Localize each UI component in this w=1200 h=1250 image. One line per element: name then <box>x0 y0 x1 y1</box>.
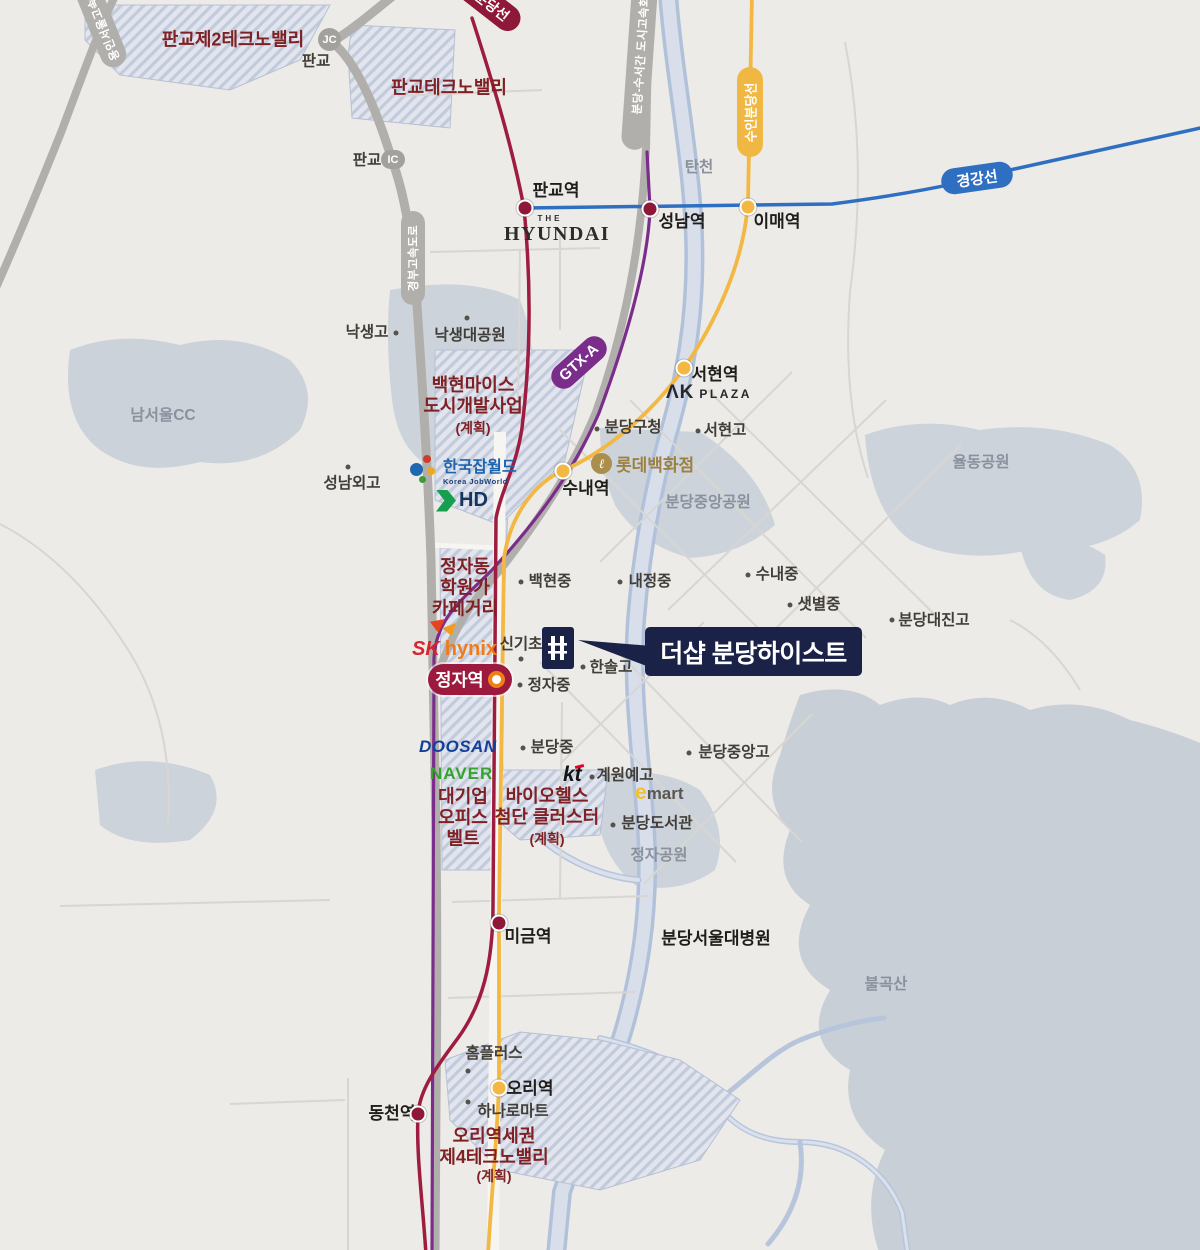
poi-dot <box>696 429 701 434</box>
map-label: 바이오헬스 첨단 클러스터 <box>495 786 599 828</box>
map-label: 동천역 <box>369 1104 416 1124</box>
station-dot <box>410 1106 427 1123</box>
map-label: 오리역 <box>507 1079 554 1099</box>
map-label: 분당중앙고 <box>698 744 769 762</box>
poi-dot <box>346 465 351 470</box>
map-label: 내정중 <box>629 573 672 591</box>
poi-dot <box>595 427 600 432</box>
map-label: 판교 <box>302 53 331 71</box>
lotte-department-store-logo: ℓ 롯데백화점 <box>591 451 694 476</box>
poi-dot <box>394 331 399 336</box>
map-label: 신기초 <box>500 636 543 654</box>
map-label: 분당중 <box>531 739 574 757</box>
map-label: 분당중앙공원 <box>665 494 751 512</box>
station-dot <box>491 915 508 932</box>
map-label: 성남역 <box>659 212 706 232</box>
poi-dot <box>611 823 616 828</box>
gyeongbu-expressway-label: 경부고속도로 <box>401 211 425 305</box>
map-label: 낙생고 <box>346 324 389 342</box>
map-label: 낙생대공원 <box>434 327 505 345</box>
sk-butterfly-icon <box>428 617 458 639</box>
map-label: 남서울CC <box>130 407 195 425</box>
poi-dot <box>519 580 524 585</box>
map-label: 율동공원 <box>952 454 1009 472</box>
map-label: 정자동 학원가 카페거리 <box>432 557 498 620</box>
map-label: 샛별중 <box>798 596 841 614</box>
poi-dot <box>519 657 524 662</box>
emart-logo: emart <box>635 781 684 805</box>
map-label: 백현마이스 도시개발사업 <box>423 375 522 417</box>
map-label: 이매역 <box>754 212 801 232</box>
poi-dot <box>746 573 751 578</box>
station-dot <box>676 360 693 377</box>
korea-jobworld-logo: 한국잡월드 Korea JobWorld <box>410 453 517 486</box>
map-label: 정자중 <box>528 677 571 695</box>
poi-dot <box>466 1069 471 1074</box>
map-label: 분당대진고 <box>898 612 969 630</box>
property-callout: 더샵 분당하이스트 <box>645 627 862 676</box>
map-label: 판교제2테크노밸리 <box>162 30 305 51</box>
hd-arrow-icon <box>436 490 456 512</box>
pangyo-jc-badge: JC <box>318 28 341 51</box>
hd-hyundai-logo: HD <box>436 489 488 512</box>
label-layer: 판교역성남역이매역서현역수내역미금역오리역동천역분당서울대병원판교판교낙생고낙생… <box>0 0 1200 1250</box>
poi-dot <box>788 603 793 608</box>
pangyo-ic-badge: IC <box>381 150 405 169</box>
map-label: 수내역 <box>563 479 610 499</box>
poi-dot <box>521 746 526 751</box>
map-label: (계획) <box>455 420 490 436</box>
map-label: 탄천 <box>685 159 714 177</box>
building-icon <box>545 633 571 663</box>
suinbundang-line-badge: 수인분당선 <box>737 67 763 157</box>
map-label: 대기업 오피스 벨트 <box>438 787 488 850</box>
map-label: 분당서울대병원 <box>661 929 770 949</box>
poi-dot <box>466 1100 471 1105</box>
property-marker <box>542 627 574 669</box>
map-label: 정자공원 <box>630 847 687 865</box>
map-label: 오리역세권 제4테크노밸리 <box>439 1126 548 1168</box>
station-dot <box>491 1080 508 1097</box>
map-label: 백현중 <box>529 573 572 591</box>
map-label: 판교 <box>353 152 382 170</box>
map-label: 분당구청 <box>604 419 661 437</box>
kt-logo: kt <box>563 763 582 787</box>
jeongja-station-badge: 정자역 <box>428 664 512 695</box>
jobworld-icon <box>410 453 438 485</box>
poi-dot <box>890 618 895 623</box>
map-label: 성남외고 <box>323 475 380 493</box>
map-label: 불곡산 <box>865 976 908 994</box>
location-map: 판교역성남역이매역서현역수내역미금역오리역동천역분당서울대병원판교판교낙생고낙생… <box>0 0 1200 1250</box>
doosan-logo: DOOSAN <box>419 737 497 757</box>
map-label: (계획) <box>529 831 564 847</box>
map-label: 홈플러스 <box>465 1045 522 1063</box>
transfer-circle-icon <box>488 671 505 688</box>
map-label: 판교테크노밸리 <box>391 78 507 99</box>
naver-logo: NAVER <box>430 764 493 784</box>
station-dot <box>642 201 659 218</box>
lotte-mark-icon: ℓ <box>591 453 612 474</box>
map-label: 서현고 <box>704 422 747 440</box>
map-label: 수내중 <box>756 566 799 584</box>
map-label: 판교역 <box>533 181 580 201</box>
map-label: 한솔고 <box>590 659 633 677</box>
station-dot <box>740 199 757 216</box>
station-dot <box>555 463 572 480</box>
map-label: (계획) <box>476 1168 511 1184</box>
the-hyundai-logo: THE HYUNDAI <box>504 214 596 246</box>
poi-dot <box>581 665 586 670</box>
poi-dot <box>518 683 523 688</box>
sk-hynix-logo: SKhynix <box>412 638 497 661</box>
map-label: 분당도서관 <box>621 815 692 833</box>
map-label: 하나로마트 <box>477 1103 548 1121</box>
poi-dot <box>590 775 595 780</box>
ak-plaza-logo: ΛKPLAZA <box>666 382 752 404</box>
poi-dot <box>618 580 623 585</box>
poi-dot <box>465 316 470 321</box>
poi-dot <box>687 751 692 756</box>
map-label: 미금역 <box>505 927 552 947</box>
